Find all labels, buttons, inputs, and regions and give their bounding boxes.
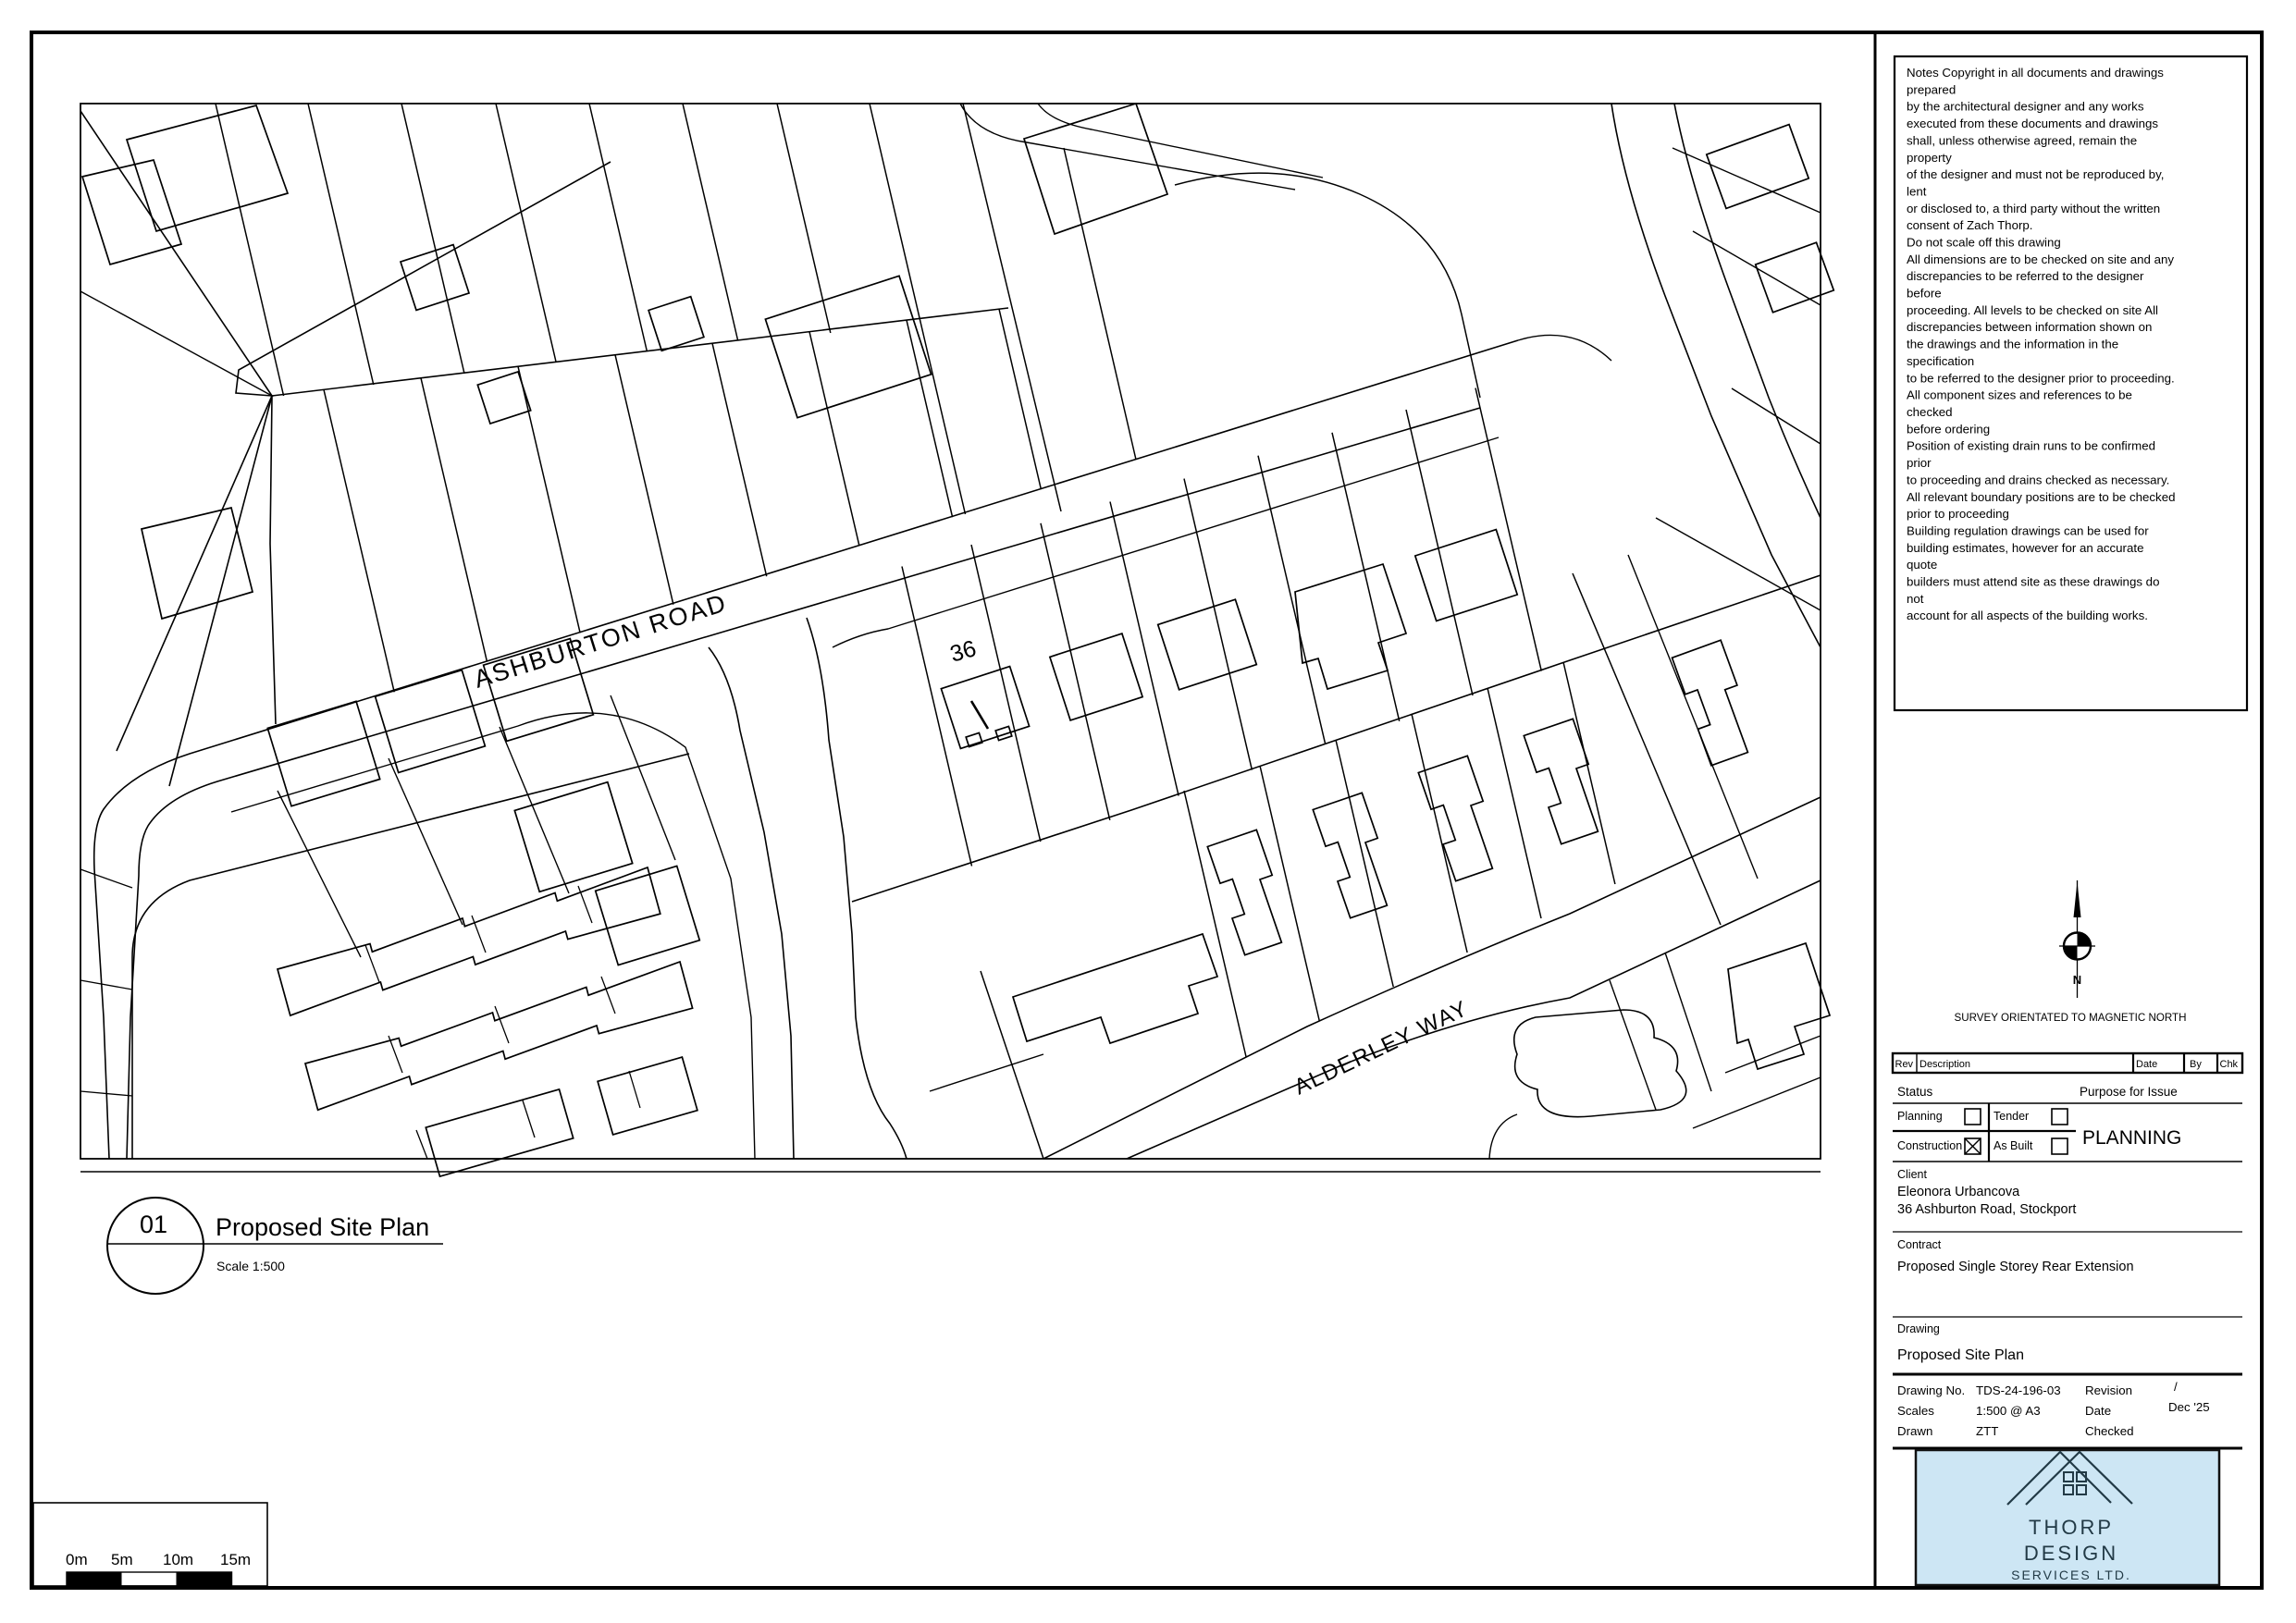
svg-text:Description: Description — [1920, 1059, 1970, 1070]
svg-text:discrepancies between informat: discrepancies between information shown … — [1907, 320, 2152, 334]
svg-text:building estimates, however fo: building estimates, however for an accur… — [1907, 541, 2143, 555]
svg-text:By: By — [2190, 1059, 2202, 1070]
svg-text:or disclosed to, a third party: or disclosed to, a third party without t… — [1907, 202, 2160, 215]
svg-text:THORP: THORP — [2029, 1516, 2114, 1539]
svg-text:SERVICES LTD.: SERVICES LTD. — [2011, 1568, 2131, 1582]
svg-text:to proceeding and drains check: to proceeding and drains checked as nece… — [1907, 473, 2169, 486]
svg-text:Proposed Site Plan: Proposed Site Plan — [1897, 1347, 2024, 1363]
svg-text:PLANNING: PLANNING — [2082, 1127, 2181, 1149]
svg-text:Chk: Chk — [2220, 1059, 2239, 1070]
svg-text:discrepancies to be referred t: discrepancies to be referred to the desi… — [1907, 269, 2144, 283]
svg-text:property: property — [1907, 151, 1952, 165]
svg-text:Planning: Planning — [1897, 1110, 1943, 1123]
svg-text:Scales: Scales — [1897, 1404, 1934, 1418]
svg-text:10m: 10m — [163, 1551, 193, 1568]
svg-text:Eleonora Urbancova: Eleonora Urbancova — [1897, 1185, 2020, 1199]
svg-text:All dimensions are to be check: All dimensions are to be checked on site… — [1907, 252, 2174, 266]
svg-text:36 Ashburton Road, Stockport: 36 Ashburton Road, Stockport — [1897, 1202, 2076, 1217]
svg-text:Checked: Checked — [2085, 1424, 2133, 1438]
svg-text:by the architectural designer: by the architectural designer and any wo… — [1907, 100, 2144, 114]
svg-text:builders must attend site as t: builders must attend site as these drawi… — [1907, 575, 2159, 589]
svg-text:of the designer and must not b: of the designer and must not be reproduc… — [1907, 167, 2164, 181]
svg-text:Tender: Tender — [1994, 1110, 2029, 1123]
svg-text:Drawing: Drawing — [1897, 1322, 1940, 1335]
svg-text:executed from these documents: executed from these documents and drawin… — [1907, 117, 2158, 130]
svg-text:SURVEY ORIENTATED TO MAGNETIC: SURVEY ORIENTATED TO MAGNETIC NORTH — [1954, 1012, 2186, 1024]
svg-text:Do not scale off this drawing: Do not scale off this drawing — [1907, 236, 2061, 250]
svg-text:0m: 0m — [66, 1551, 88, 1568]
svg-text:not: not — [1907, 592, 1924, 606]
svg-text:Contract: Contract — [1897, 1238, 1942, 1251]
svg-text:specification: specification — [1907, 354, 1974, 368]
svg-text:Building regulation drawings c: Building regulation drawings can be used… — [1907, 524, 2149, 538]
svg-text:Proposed Site Plan: Proposed Site Plan — [216, 1213, 429, 1241]
svg-text:account for all aspects of the: account for all aspects of the building … — [1907, 609, 2148, 622]
svg-text:prepared: prepared — [1907, 82, 1956, 96]
svg-text:consent of Zach Thorp.: consent of Zach Thorp. — [1907, 218, 2033, 232]
svg-text:Date: Date — [2085, 1404, 2111, 1418]
svg-text:Status: Status — [1897, 1085, 1933, 1099]
svg-text:Proposed Single Storey Rear Ex: Proposed Single Storey Rear Extension — [1897, 1260, 2134, 1274]
svg-text:lent: lent — [1907, 185, 1927, 199]
svg-text:Drawn: Drawn — [1897, 1424, 1932, 1438]
svg-text:Position of existing drain run: Position of existing drain runs to be co… — [1907, 439, 2155, 453]
svg-text:proceeding. All levels to be c: proceeding. All levels to be checked on … — [1907, 303, 2158, 317]
svg-text:to be referred to the designer: to be referred to the designer prior to … — [1907, 371, 2175, 385]
svg-text:ZTT: ZTT — [1976, 1424, 1998, 1438]
svg-text:15m: 15m — [220, 1551, 251, 1568]
svg-text:Rev: Rev — [1895, 1059, 1914, 1070]
svg-text:Date: Date — [2136, 1059, 2157, 1070]
svg-text:shall, unless otherwise agreed: shall, unless otherwise agreed, remain t… — [1907, 133, 2137, 147]
svg-text:the drawings and the informati: the drawings and the information in the — [1907, 338, 2118, 351]
svg-text:Client: Client — [1897, 1168, 1927, 1181]
svg-text:N: N — [2073, 973, 2081, 987]
svg-text:01: 01 — [140, 1211, 167, 1238]
svg-text:before: before — [1907, 287, 1942, 301]
svg-text:prior: prior — [1907, 456, 1932, 470]
svg-text:Construction: Construction — [1897, 1139, 1962, 1152]
svg-text:Notes Copyright in all documen: Notes Copyright in all documents and dra… — [1907, 66, 2164, 80]
svg-text:/: / — [2174, 1380, 2178, 1394]
svg-text:1:500 @ A3: 1:500 @ A3 — [1976, 1404, 2041, 1418]
svg-text:Purpose for Issue: Purpose for Issue — [2080, 1085, 2178, 1099]
svg-text:before ordering: before ordering — [1907, 422, 1990, 436]
svg-text:Scale 1:500: Scale 1:500 — [216, 1259, 285, 1273]
svg-text:DESIGN: DESIGN — [2024, 1542, 2118, 1565]
svg-text:checked: checked — [1907, 405, 1953, 419]
svg-text:5m: 5m — [111, 1551, 133, 1568]
svg-text:As Built: As Built — [1994, 1139, 2033, 1152]
svg-text:Dec '25: Dec '25 — [2168, 1400, 2210, 1414]
svg-text:All relevant boundary position: All relevant boundary positions are to b… — [1907, 490, 2176, 504]
svg-text:prior to proceeding: prior to proceeding — [1907, 507, 2009, 521]
svg-text:All component sizes and refere: All component sizes and references to be — [1907, 388, 2132, 402]
svg-text:Drawing No.: Drawing No. — [1897, 1383, 1965, 1397]
svg-text:TDS-24-196-03: TDS-24-196-03 — [1976, 1383, 2061, 1397]
svg-text:Revision: Revision — [2085, 1383, 2132, 1397]
svg-text:quote: quote — [1907, 558, 1937, 572]
